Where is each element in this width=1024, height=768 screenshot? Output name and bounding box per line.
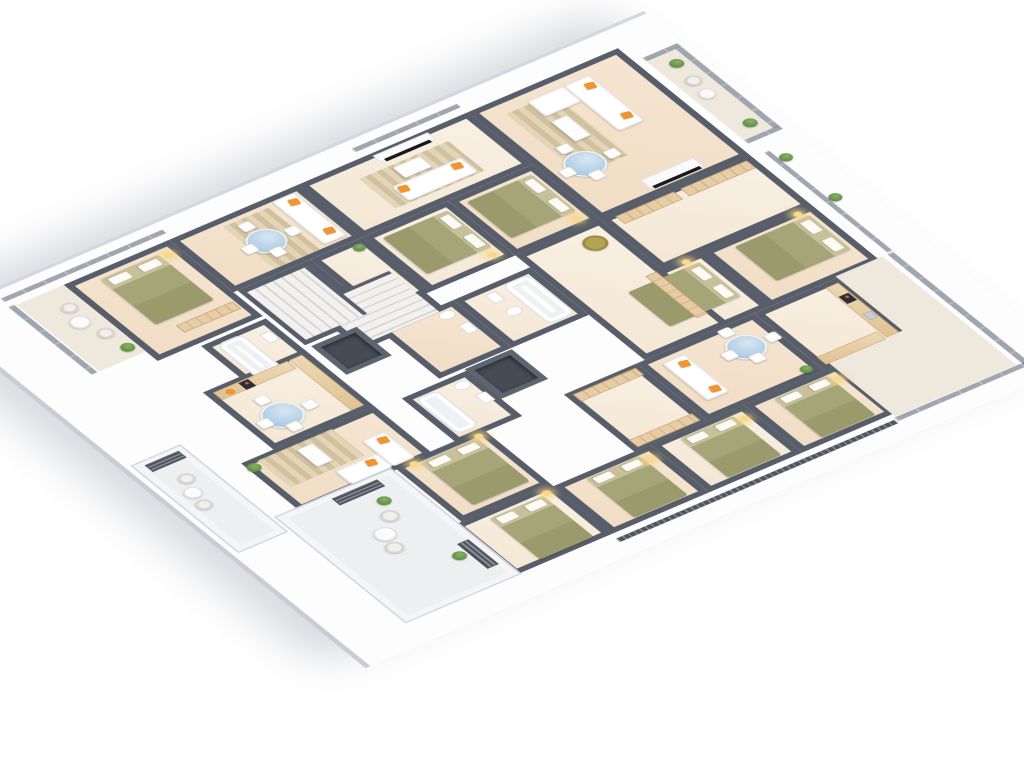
floorplan-3d-render: Isometric 3D rendering of an apartment b… <box>0 0 1024 768</box>
building-plan <box>5 40 1020 626</box>
